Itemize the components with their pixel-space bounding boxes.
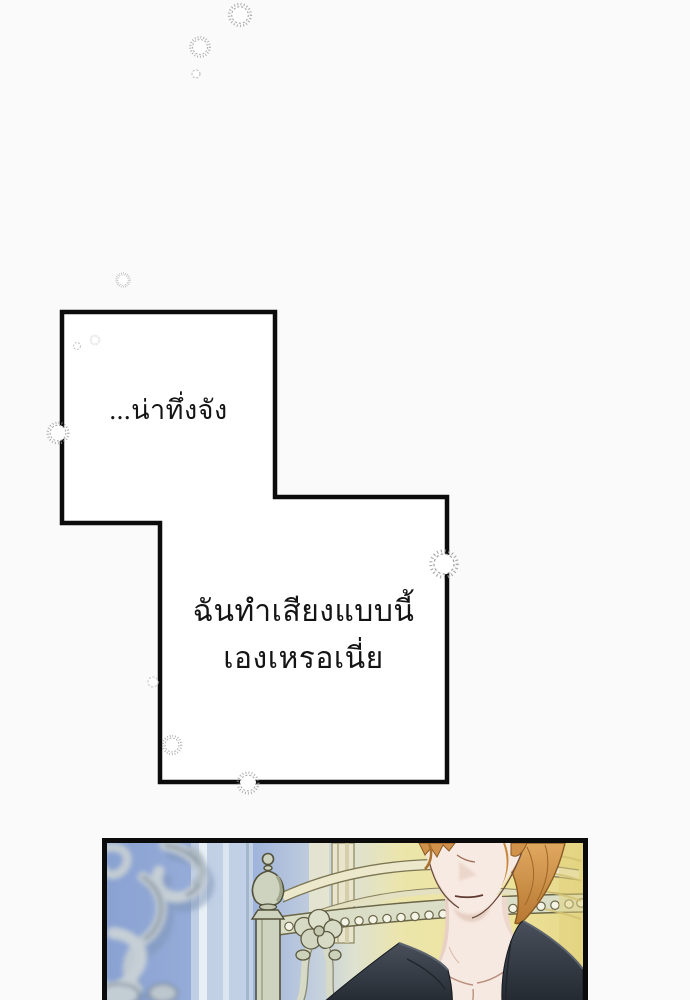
sparkle-icon <box>116 273 130 287</box>
bubble1-text: ...น่าทึ่งจัง <box>62 384 275 436</box>
webtoon-page: ...น่าทึ่งจัง ฉันทำเสียงแบบนี้ เองเหรอเน… <box>0 0 690 1000</box>
comic-panel <box>102 838 588 1000</box>
speech-bubble-2: ฉันทำเสียงแบบนี้ เองเหรอเนี่ย <box>160 588 447 682</box>
sparkle-icon <box>229 4 251 26</box>
speech-bubble-1: ...น่าทึ่งจัง <box>62 384 275 436</box>
sparkle-dot-icon <box>148 677 158 687</box>
sparkle-dot-icon <box>192 70 200 78</box>
sparkle-icon <box>190 37 210 57</box>
panel-illustration <box>107 843 583 1000</box>
bubble2-line2: เองเหรอเนี่ย <box>160 635 447 682</box>
speech-bubble-outline <box>62 312 447 782</box>
bubble2-line1: ฉันทำเสียงแบบนี้ <box>160 588 447 635</box>
sparkle-dot-icon <box>74 343 81 350</box>
